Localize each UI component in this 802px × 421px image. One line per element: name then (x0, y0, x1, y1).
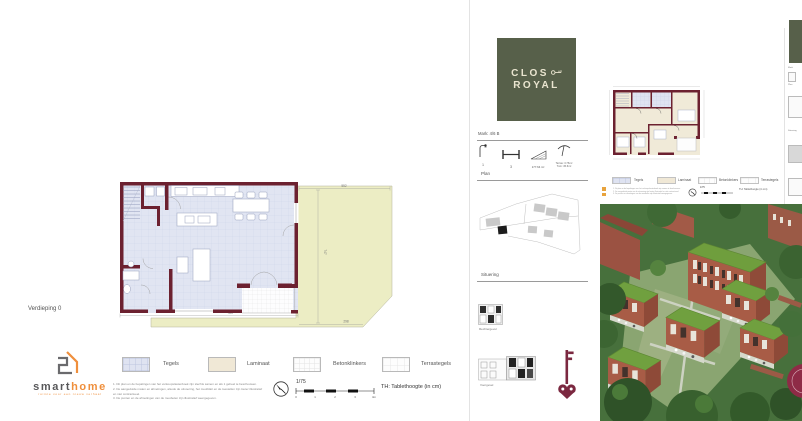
rule (477, 281, 588, 282)
stat-shower-value: 1 (476, 163, 490, 167)
aerial-render-image (600, 204, 802, 421)
legend-swatch-terrastegels (382, 357, 410, 372)
rule (477, 140, 588, 141)
mini-scale-ratio: 1/75 (700, 186, 705, 189)
mini-th-note: TH: Tablethoogte (in cm) (739, 188, 767, 191)
mini-fold-line (784, 28, 785, 204)
legend-swatch-laminaat (208, 357, 236, 372)
stat-bedrooms-value: 3 (500, 165, 522, 169)
facade-front-label: Voorgevel (480, 383, 493, 387)
mini-legend-swatch-laminaat (657, 177, 676, 184)
scale-tick-3: 3 (354, 395, 356, 399)
ornamental-key-icon (556, 348, 578, 400)
plan-note-line: 3. De punten en de afmetingen van de meu… (113, 396, 268, 401)
floor-label: Verdieping 0 (28, 306, 61, 312)
north-compass-icon (272, 380, 290, 398)
mini-plan-notes: 1. Dit plan en de bepalingen van het ver… (613, 188, 685, 196)
mini-scale-bar (700, 191, 734, 195)
mini-situering-label: Situering (788, 130, 797, 132)
scale-ratio: 1/75 (296, 379, 306, 385)
mini-facade-thumb-2 (788, 178, 802, 196)
dim-garden-right: 747 (323, 249, 327, 255)
plan-section-label: Plan (481, 171, 490, 176)
mark-label: Mark: 4/6 B (478, 131, 499, 136)
floor-plan-drawing: 552 747 298 784 560 140 838 (113, 173, 397, 335)
area-triangle-icon (530, 150, 547, 160)
facade-front-thumbnail (478, 356, 536, 381)
legend-swatch-tegels (122, 357, 150, 372)
mini-stat-icon (788, 72, 796, 82)
rule (477, 180, 588, 181)
scale-bar: 0 1 2 3 4m (294, 387, 378, 400)
scale-tick-1: 1 (314, 395, 316, 399)
stat-garden-value: Tuin: 45.6m² (550, 165, 578, 168)
key-glyph-icon (551, 69, 562, 76)
scale-tick-4: 4m (372, 395, 377, 399)
revision-marker-dot (602, 193, 606, 196)
title-block: CLOS ROYAL Mark: 4/6 B 1 3 (470, 0, 596, 421)
mini-legend-swatch-terrastegels (740, 177, 759, 184)
mini-legend-label-tegels: Tegels (634, 178, 643, 182)
legend-label-tegels: Tegels (163, 361, 179, 367)
logo-line1: CLOS (511, 68, 549, 79)
bed-icon (501, 150, 521, 160)
mini-plan-label: Plan (788, 84, 792, 86)
mini-facade-thumb-1 (788, 145, 802, 163)
legend-swatch-betonklinkers (293, 357, 321, 372)
legend-label-terrastegels: Terrastegels (421, 361, 451, 367)
mini-site-sketch (788, 96, 802, 118)
stat-area: 177.64 m² (526, 147, 550, 169)
sheet-main: 552 747 298 784 560 140 838 (0, 0, 467, 421)
scale-tick-2: 2 (334, 395, 336, 399)
sheet-mini: Tegels Laminaat Betonklinkers Terrastege… (598, 0, 802, 204)
th-note: TH: Tablethoogte (in cm) (381, 384, 441, 390)
mini-legend-label-betonklinkers: Betonklinkers (719, 178, 738, 182)
clos-royal-logo: CLOS ROYAL (497, 38, 576, 121)
site-location-marker (498, 225, 508, 234)
stat-shower: 1 (476, 144, 490, 167)
legend-label-laminaat: Laminaat (247, 361, 270, 367)
stat-area-value: 177.64 m² (526, 165, 550, 169)
plan-sheet-page: 552 747 298 784 560 140 838 (0, 0, 802, 421)
site-plan-sketch (478, 190, 582, 264)
stat-terrace-garden: Terras: 3.76m² Tuin: 45.6m² (550, 144, 578, 169)
mini-floor-plan (608, 84, 708, 164)
mini-north-compass-icon (688, 188, 697, 197)
mini-note-line: 3. De punten en afmetingen van de meubel… (613, 193, 685, 196)
brand-tagline: ruimte voor een nieuw verhaal (28, 392, 112, 396)
smarthome-logo-icon (52, 350, 84, 377)
mini-mark-label: Mark (788, 67, 793, 69)
legend-label-betonklinkers: Betonklinkers (333, 361, 366, 367)
plan-notes: 1. Dit plan en de bepalingen van het ver… (113, 382, 268, 401)
scale-tick-0: 0 (295, 395, 297, 399)
plan-note-line: 2. De aangeduide maten en afmetingen, al… (113, 387, 268, 392)
dim-garden-top: 552 (341, 184, 347, 188)
mini-legend-label-laminaat: Laminaat (678, 178, 691, 182)
stat-bedrooms: 3 (500, 147, 522, 169)
logo-line2: ROYAL (513, 80, 560, 91)
parasol-icon (556, 144, 572, 157)
facade-right-thumbnail (478, 304, 503, 325)
mini-legend-label-terrastegels: Terrastegels (761, 178, 778, 182)
mini-legend-swatch-betonklinkers (698, 177, 717, 184)
dim-garden-bottom: 298 (343, 320, 349, 324)
revision-marker (602, 187, 606, 191)
shower-icon (478, 144, 488, 158)
situering-section-label: Situering (481, 272, 499, 277)
mini-clos-royal-logo (789, 20, 802, 63)
facade-right-label: Rechtergevel (479, 327, 497, 331)
mini-legend-swatch-tegels (612, 177, 631, 184)
